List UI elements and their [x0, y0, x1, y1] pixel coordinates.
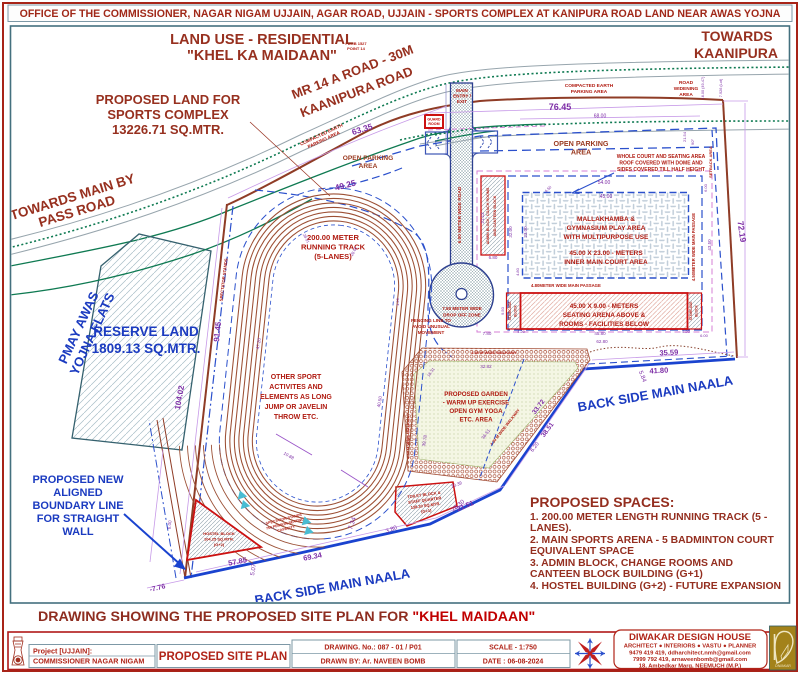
svg-text:ROOMS - FACILITIES BELOW: ROOMS - FACILITIES BELOW	[559, 321, 650, 328]
svg-text:OTHER SPORT: OTHER SPORT	[271, 374, 322, 381]
svg-text:ALIGNED: ALIGNED	[53, 487, 103, 499]
svg-text:ETC. AREA: ETC. AREA	[459, 417, 493, 424]
svg-text:45.00 X 23.00 - METERS: 45.00 X 23.00 - METERS	[569, 250, 643, 257]
svg-text:23.00: 23.00	[523, 226, 528, 238]
svg-text:6.00 METER WIDE ROAD: 6.00 METER WIDE ROAD	[457, 186, 463, 243]
svg-text:1.25: 1.25	[395, 297, 400, 306]
svg-text:HOSTEL BLOCK: HOSTEL BLOCK	[203, 531, 235, 536]
svg-text:WALL: WALL	[62, 526, 93, 538]
svg-text:41.80: 41.80	[649, 366, 668, 376]
svg-text:PROPOSED SITE PLAN: PROPOSED SITE PLAN	[159, 651, 287, 663]
svg-text:SIDES COVERED TILL HALF HEIGHT: SIDES COVERED TILL HALF HEIGHT	[617, 167, 705, 173]
svg-text:"KHEL KA MAIDAAN": "KHEL KA MAIDAAN"	[187, 48, 337, 64]
svg-text:DIWAKAR DESIGN HOUSE: DIWAKAR DESIGN HOUSE	[629, 632, 752, 643]
svg-text:AVOID UNUSUAL: AVOID UNUSUAL	[412, 324, 450, 329]
svg-text:76.45: 76.45	[549, 102, 572, 112]
svg-text:21.12: 21.12	[480, 212, 485, 224]
svg-text:ENTRY /: ENTRY /	[453, 94, 472, 99]
svg-text:WITH MULTIPURPOSE USE: WITH MULTIPURPOSE USE	[564, 234, 649, 241]
svg-text:GYMNASIUM PLAY AREA: GYMNASIUM PLAY AREA	[567, 225, 646, 232]
svg-text:21.54: 21.54	[682, 131, 687, 142]
svg-text:RESERVE LAND: RESERVE LAND	[93, 324, 199, 339]
svg-text:GUARD: GUARD	[427, 118, 441, 122]
svg-text:AREA: AREA	[571, 148, 591, 157]
svg-text:4.80METER WIDE MAIN PASSAGE: 4.80METER WIDE MAIN PASSAGE	[531, 283, 601, 288]
svg-text:104.25 SQ.MTR.: 104.25 SQ.MTR.	[204, 537, 234, 542]
svg-text:(5-LANES): (5-LANES)	[314, 252, 352, 261]
svg-text:45.00 X 9.00 - METERS: 45.00 X 9.00 - METERS	[570, 303, 639, 310]
svg-text:9479 419 419, ddharchitect.nmh: 9479 419 419, ddharchitect.nmh@gmail.com	[629, 651, 751, 657]
svg-text:FENCING LINE TO: FENCING LINE TO	[411, 318, 451, 323]
svg-text:KAANIPURA: KAANIPURA	[694, 45, 778, 61]
svg-text:SETBACK AREA: SETBACK AREA	[708, 146, 713, 178]
svg-text:4.20: 4.20	[517, 329, 526, 334]
svg-text:4.80: 4.80	[515, 267, 520, 276]
svg-text:7.926 (Lot): 7.926 (Lot)	[719, 78, 723, 97]
svg-text:ROOF COVERED WITH DOME AND: ROOF COVERED WITH DOME AND	[619, 161, 703, 167]
svg-text:4.20: 4.20	[682, 329, 691, 334]
svg-text:35.59: 35.59	[659, 348, 678, 358]
svg-text:3. ADMIN BLOCK, CHANGE ROOMS A: 3. ADMIN BLOCK, CHANGE ROOMS AND	[530, 558, 733, 569]
svg-text:MOVEMENT: MOVEMENT	[418, 330, 445, 335]
svg-text:SCALE - 1:750: SCALE - 1:750	[489, 645, 537, 652]
svg-text:32.00: 32.00	[508, 226, 513, 238]
svg-text:BLOCK: BLOCK	[695, 305, 699, 317]
svg-text:PROPOSED LAND FOR: PROPOSED LAND FOR	[96, 92, 241, 107]
svg-text:AREA: AREA	[359, 163, 378, 170]
svg-text:6.80: 6.80	[489, 255, 498, 260]
svg-text:- WARM UP EXERCISE: - WARM UP EXERCISE	[443, 400, 510, 407]
svg-text:54.00: 54.00	[598, 180, 611, 186]
svg-text:ADMIN BLOCK, COACH ROOMS: ADMIN BLOCK, COACH ROOMS	[486, 187, 490, 244]
svg-text:LAND USE - RESIDENTIAL: LAND USE - RESIDENTIAL	[170, 32, 354, 48]
svg-text:DRAWING. No.: 087 - 01 / P01: DRAWING. No.: 087 - 01 / P01	[324, 645, 421, 652]
svg-text:13226.71 SQ.MTR.: 13226.71 SQ.MTR.	[112, 122, 224, 137]
svg-text:SPORTS COMPLEX: SPORTS COMPLEX	[107, 107, 229, 122]
svg-text:PROPOSED GARDEN: PROPOSED GARDEN	[444, 391, 508, 398]
svg-text:32.82: 32.82	[480, 364, 492, 369]
svg-text:STAIRCASE: STAIRCASE	[508, 301, 512, 321]
svg-text:FOR STRAIGHT: FOR STRAIGHT	[37, 513, 120, 525]
svg-text:6.00: 6.00	[703, 183, 708, 192]
svg-text:EXIT: EXIT	[457, 99, 467, 104]
svg-text:BLOCK: BLOCK	[514, 305, 518, 317]
svg-text:OFFICE OF THE COMMISSIONER, NA: OFFICE OF THE COMMISSIONER, NAGAR NIGAM …	[20, 8, 781, 20]
svg-text:200.00 METER: 200.00 METER	[307, 233, 359, 242]
svg-text:18, Ambedkar Marg, NEEMUCH (M.: 18, Ambedkar Marg, NEEMUCH (M.P.)	[639, 664, 742, 670]
svg-text:DIWAKAR: DIWAKAR	[775, 664, 791, 668]
svg-text:THROW ETC.: THROW ETC.	[274, 414, 318, 421]
svg-text:MALLAKHAMBA &: MALLAKHAMBA &	[577, 216, 635, 223]
svg-text:PROPOSED NEW: PROPOSED NEW	[32, 474, 124, 486]
svg-text:16.00 (49-47): 16.00 (49-47)	[701, 76, 705, 100]
svg-text:ROOM: ROOM	[428, 122, 439, 126]
svg-text:45.80: 45.80	[594, 331, 606, 336]
svg-text:CANTEEN BLOCK BUILDING (G+1): CANTEEN BLOCK BUILDING (G+1)	[530, 569, 703, 580]
svg-text:2. MAIN SPORTS ARENA - 5 BADMI: 2. MAIN SPORTS ARENA - 5 BADMINTON COURT	[530, 535, 774, 546]
svg-text:7999 792 419, arnaveenbomb@gma: 7999 792 419, arnaveenbomb@gmail.com	[633, 657, 747, 663]
svg-text:DRAWING SHOWING THE PROPOSED S: DRAWING SHOWING THE PROPOSED SITE PLAN F…	[38, 609, 535, 625]
svg-text:DROP OFF ZONE: DROP OFF ZONE	[443, 313, 481, 318]
svg-text:45.00: 45.00	[600, 194, 613, 200]
svg-text:7.80: 7.80	[483, 331, 492, 336]
svg-text:6.00: 6.00	[700, 333, 709, 338]
svg-text:MAIN: MAIN	[456, 88, 468, 93]
svg-text:4. HOSTEL BUILDING (G+2) - FUT: 4. HOSTEL BUILDING (G+2) - FUTURE EXPANS…	[530, 581, 781, 592]
svg-text:COMMISSIONER NAGAR NIGAM: COMMISSIONER NAGAR NIGAM	[33, 657, 144, 666]
svg-text:1809.13 SQ.MTR.: 1809.13 SQ.MTR.	[92, 341, 201, 356]
svg-text:PARKING AREA: PARKING AREA	[571, 89, 608, 95]
svg-text:PROPOSED SPACES:: PROPOSED SPACES:	[530, 494, 674, 510]
svg-text:90°: 90°	[690, 139, 695, 145]
svg-text:JUMP OR JAVELIN: JUMP OR JAVELIN	[265, 404, 328, 411]
svg-text:AND CANTEEN BLOCK: AND CANTEEN BLOCK	[493, 195, 497, 236]
svg-text:WHOLE COURT AND SEATING AREA: WHOLE COURT AND SEATING AREA	[617, 154, 706, 160]
svg-text:4.80 M WIDE WALKWAY: 4.80 M WIDE WALKWAY	[471, 350, 517, 355]
svg-text:ROAD: ROAD	[679, 80, 694, 86]
svg-text:1. 200.00 METER LENGTH RUNNING: 1. 200.00 METER LENGTH RUNNING TRACK (5 …	[530, 512, 768, 523]
svg-text:62.80: 62.80	[596, 339, 608, 344]
svg-text:WIDENING: WIDENING	[674, 86, 699, 92]
svg-text:DATE : 06-08-2024: DATE : 06-08-2024	[483, 659, 544, 666]
svg-text:4.50METER WIDE MAIN PASSAGE: 4.50METER WIDE MAIN PASSAGE	[691, 213, 696, 281]
svg-text:ELEMENTS AS LONG: ELEMENTS AS LONG	[260, 394, 332, 401]
svg-text:Project [UJJAIN]:: Project [UJJAIN]:	[33, 647, 92, 656]
svg-text:DRAWN BY: Ar. NAVEEN BOMB: DRAWN BY: Ar. NAVEEN BOMB	[321, 659, 426, 666]
svg-text:7.50 METER WIDE: 7.50 METER WIDE	[442, 306, 482, 311]
svg-text:OPEN GYM YOGA: OPEN GYM YOGA	[449, 408, 503, 415]
svg-text:INNER MAIN COURT AREA: INNER MAIN COURT AREA	[564, 259, 648, 266]
svg-text:LANES).: LANES).	[530, 523, 572, 534]
svg-text:68.00: 68.00	[594, 114, 607, 120]
svg-text:(G+2): (G+2)	[214, 542, 225, 547]
svg-text:AREA: AREA	[679, 92, 693, 98]
svg-text:TOWARDS: TOWARDS	[701, 28, 772, 44]
svg-text:COMPACTED EARTH: COMPACTED EARTH	[565, 83, 614, 89]
svg-text:STAIRCASE: STAIRCASE	[689, 301, 693, 321]
svg-text:43.50: 43.50	[707, 239, 712, 251]
svg-text:ARCHITECT ● INTERIORS ● VASTU: ARCHITECT ● INTERIORS ● VASTU ● PLANNER	[624, 644, 757, 650]
svg-text:BOUNDARY LINE: BOUNDARY LINE	[32, 500, 123, 512]
svg-text:ACTIVITES AND: ACTIVITES AND	[269, 384, 322, 391]
svg-text:EQUIVALENT SPACE: EQUIVALENT SPACE	[530, 546, 634, 557]
svg-text:SEATING ARENA ABOVE &: SEATING ARENA ABOVE &	[563, 312, 646, 319]
svg-text:9.50: 9.50	[500, 306, 505, 315]
svg-text:OPEN PARKING: OPEN PARKING	[343, 155, 393, 162]
